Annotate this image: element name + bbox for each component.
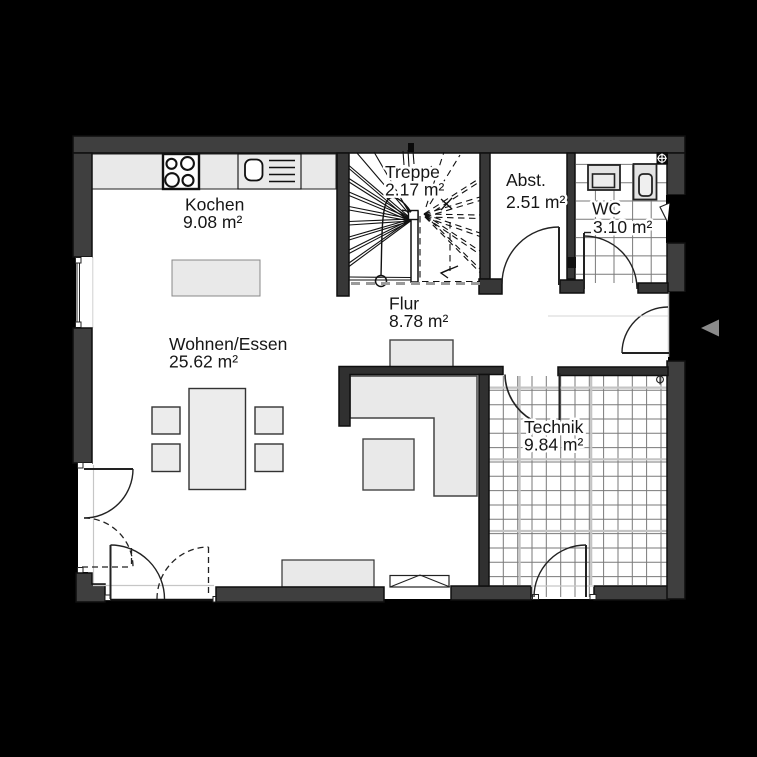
svg-text:2.51 m²: 2.51 m² [506, 192, 565, 212]
svg-text:WC: WC [592, 199, 621, 219]
svg-text:9.84 m²: 9.84 m² [524, 435, 583, 455]
svg-text:9.08 m²: 9.08 m² [183, 212, 242, 232]
svg-text:2.17 m²: 2.17 m² [385, 180, 444, 200]
svg-text:8.78 m²: 8.78 m² [389, 311, 448, 331]
svg-text:25.62 m²: 25.62 m² [169, 352, 238, 372]
svg-text:Abst.: Abst. [506, 170, 546, 190]
svg-text:3.10 m²: 3.10 m² [593, 217, 652, 237]
